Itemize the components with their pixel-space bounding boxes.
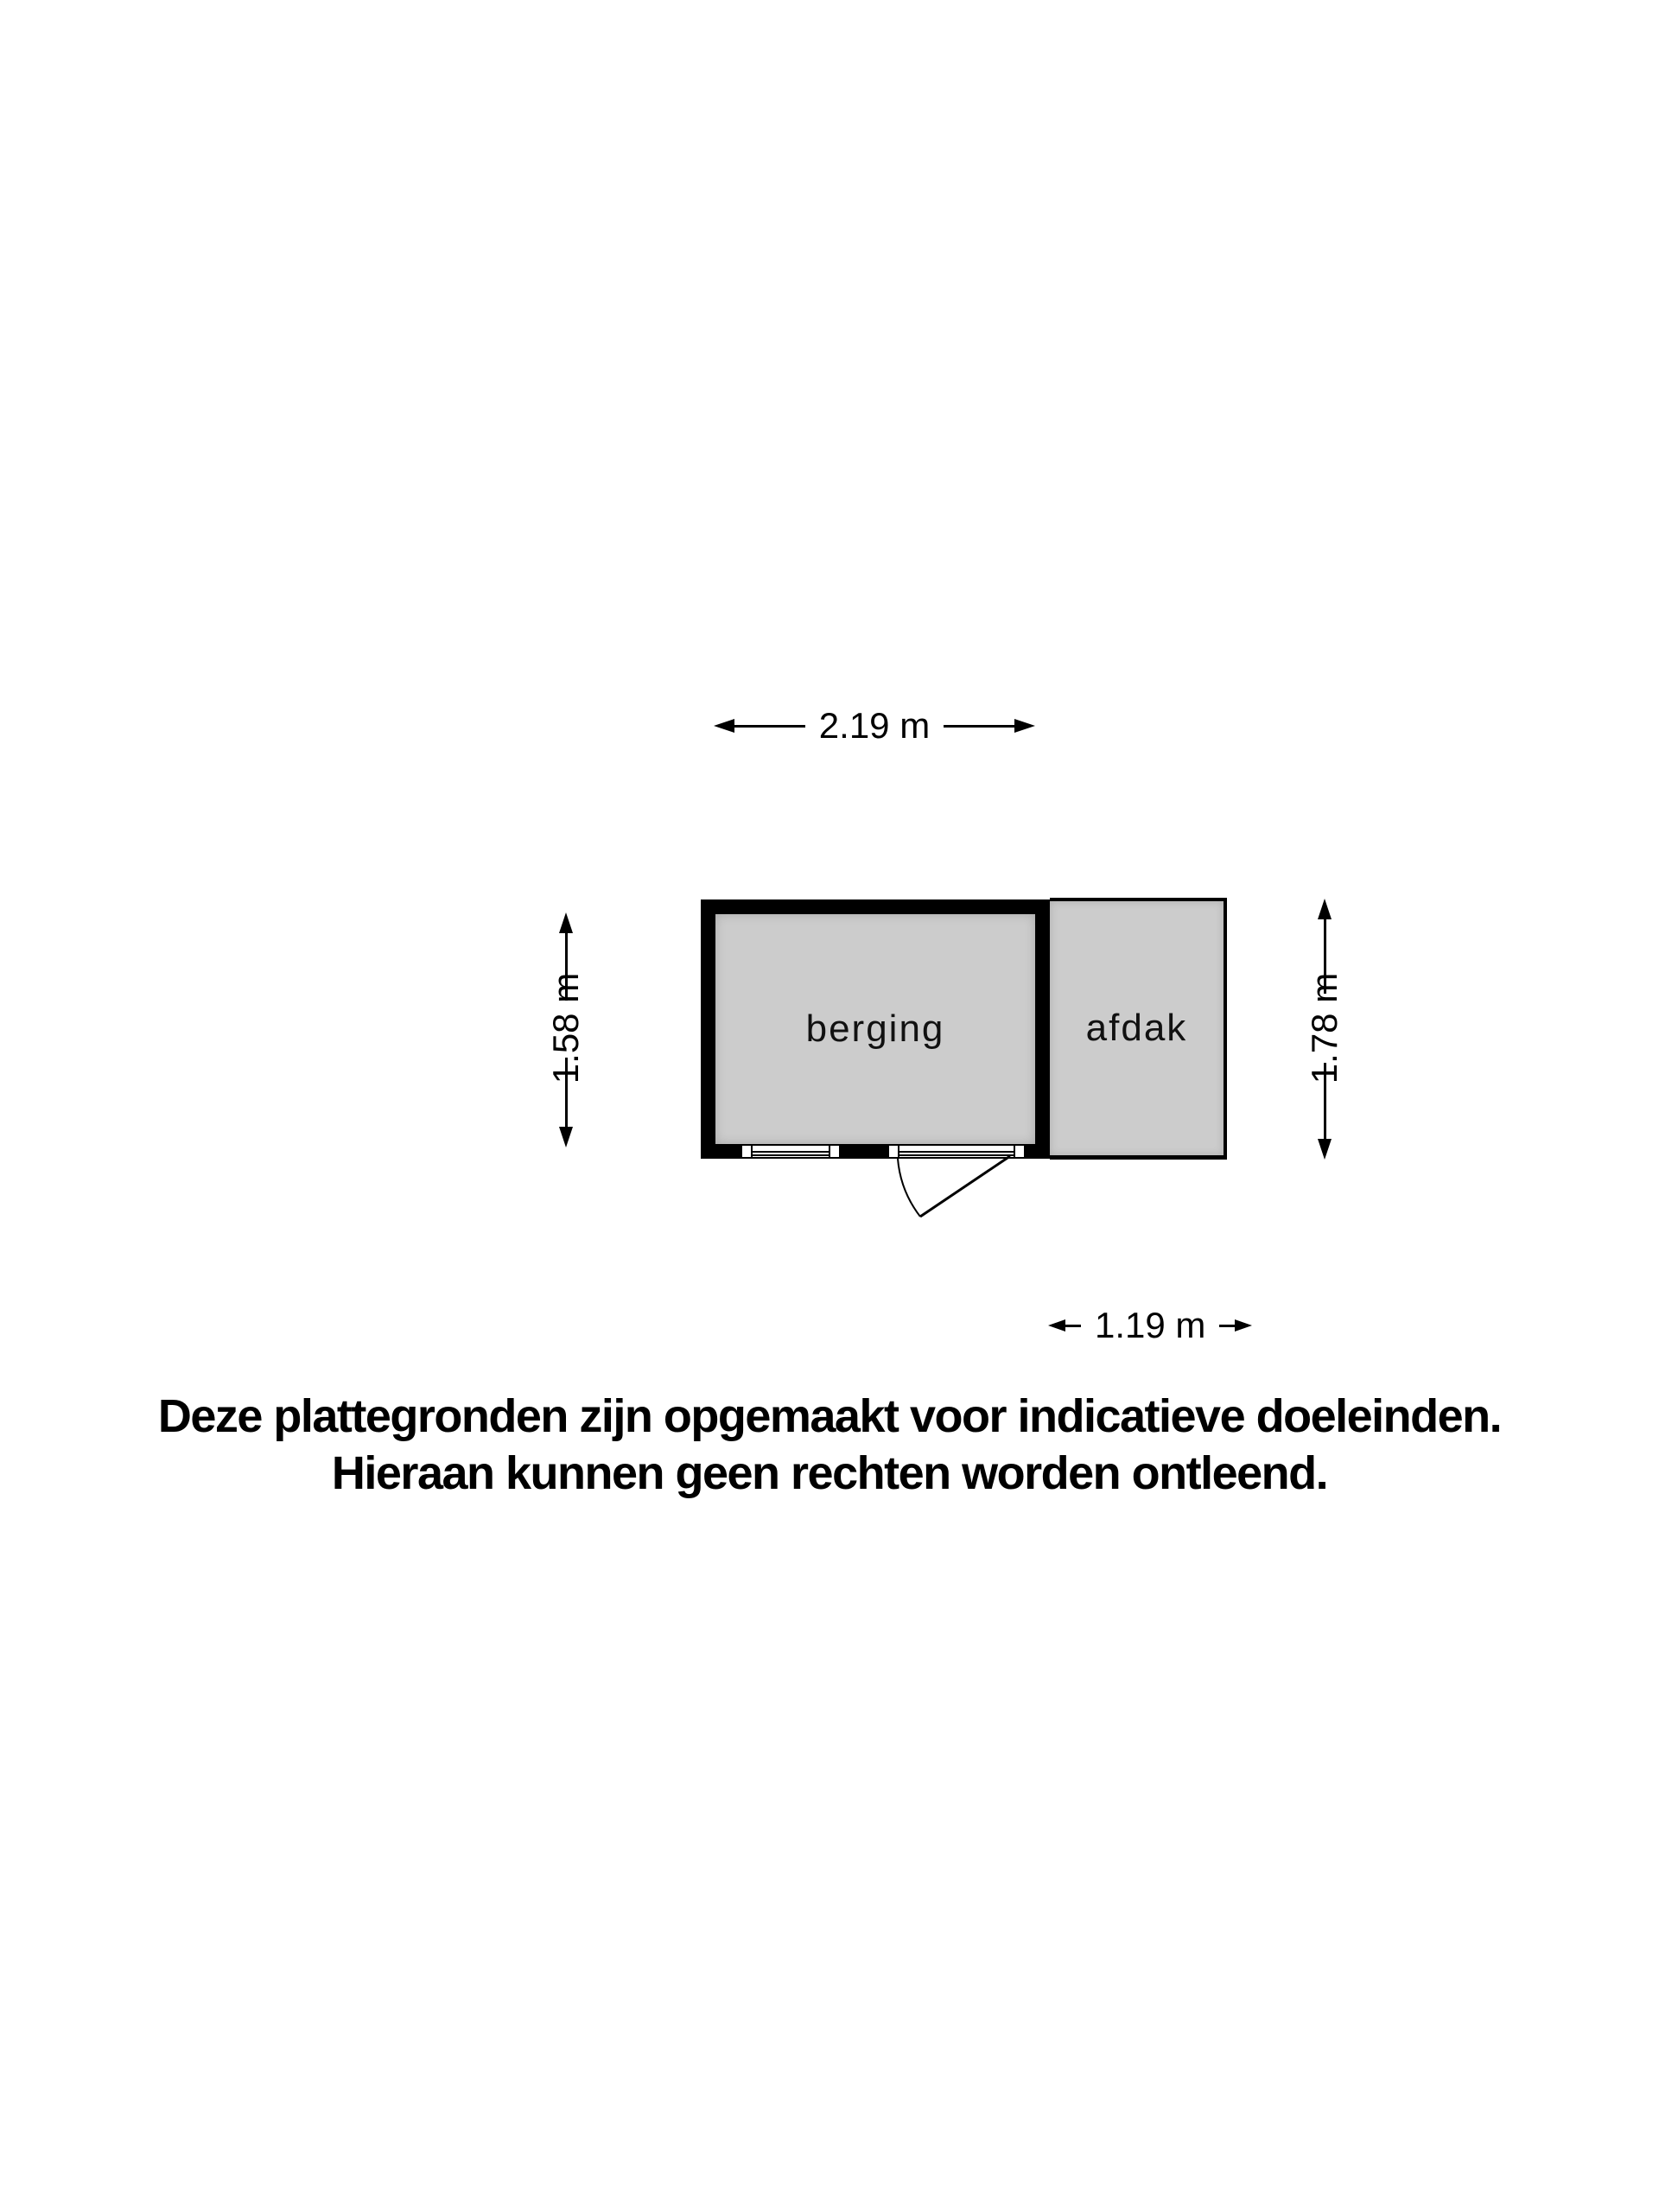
arrow-left-icon: [714, 719, 734, 733]
arrow-up-icon: [1318, 899, 1332, 919]
window-glass: [752, 1144, 829, 1159]
dimension-arrow-group: [1048, 1319, 1081, 1332]
arrow-up-icon: [559, 912, 573, 933]
dimension-bottom: 1.19 m: [1048, 1306, 1228, 1344]
floorplan-page: 2.19 m berging: [0, 0, 1659, 2212]
window-frame-cap: [829, 1144, 841, 1159]
window-pane-line: [752, 1151, 829, 1153]
dimension-bottom-label: 1.19 m: [1081, 1307, 1219, 1344]
window-pane-line: [752, 1154, 829, 1156]
dimension-arrow-group: [1219, 1319, 1252, 1332]
disclaimer-line-2: Hieraan kunnen geen rechten worden ontle…: [0, 1445, 1659, 1502]
dimension-line: [1219, 1325, 1235, 1327]
dimension-top-label: 2.19 m: [805, 708, 944, 744]
arrow-down-icon: [1318, 1139, 1332, 1160]
window-frame-cap: [741, 1144, 753, 1159]
room-afdak: afdak: [1050, 898, 1227, 1160]
dimension-top: 2.19 m: [714, 707, 1035, 745]
door-swing: [877, 1149, 1058, 1257]
dimension-line: [565, 1058, 568, 1127]
room-berging-label: berging: [806, 1010, 945, 1048]
room-berging: berging: [701, 899, 1050, 1159]
arrow-right-icon: [1014, 719, 1035, 733]
room-berging-floor: berging: [715, 914, 1035, 1144]
arrow-right-icon: [1235, 1319, 1252, 1332]
arrow-left-icon: [1048, 1319, 1065, 1332]
dimension-line: [734, 725, 805, 728]
disclaimer-line-1: Deze plattegronden zijn opgemaakt voor i…: [0, 1388, 1659, 1445]
arrow-down-icon: [559, 1127, 573, 1147]
window: [741, 1144, 841, 1159]
dimension-line: [944, 725, 1014, 728]
dimension-line: [1065, 1325, 1081, 1327]
dimension-line: [1324, 1063, 1326, 1139]
room-afdak-label: afdak: [1086, 1009, 1188, 1047]
door-panel: [920, 1156, 1010, 1217]
disclaimer: Deze plattegronden zijn opgemaakt voor i…: [0, 1388, 1659, 1502]
door-arc: [898, 1159, 920, 1217]
